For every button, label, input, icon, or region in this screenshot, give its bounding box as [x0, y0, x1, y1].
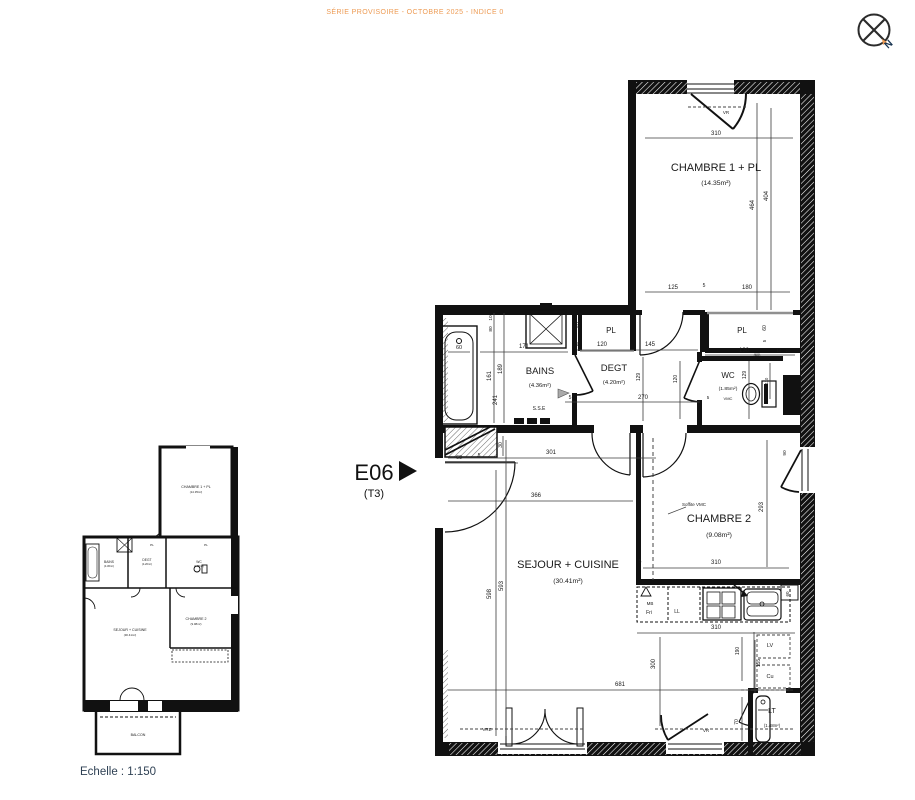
overview-plan: CHAMBRE 1 + PL(14.35m²)BAINS(4.36m²)DEGT… — [84, 446, 238, 754]
dimension-label: 5 — [703, 283, 706, 289]
overview-room-label: (30.41m²) — [124, 633, 137, 637]
annotation-label: LV — [767, 643, 774, 649]
room-name-label: CHAMBRE 1 + PL — [671, 162, 761, 174]
room-area-label: (1.85m²) — [719, 386, 738, 392]
dimension-label: 120 — [673, 375, 679, 384]
dimension-label: 120 — [597, 342, 608, 348]
dashed-lines — [460, 107, 795, 729]
fridge-warning-icon — [641, 587, 651, 596]
dimension-label: 310 — [711, 131, 722, 137]
overview-walls — [84, 446, 238, 754]
dimension-label: 60 — [576, 322, 582, 328]
dimension-label: 404 — [764, 190, 770, 201]
dimension-label: 310 — [711, 560, 722, 566]
dimension-label: 241 — [493, 394, 499, 405]
shower — [526, 310, 566, 348]
overview-room-label: PL — [204, 543, 208, 547]
dimension-label: 5 — [707, 395, 710, 400]
annotation-label: VRE — [482, 727, 491, 732]
overview-room-label: (4.36m²) — [104, 564, 114, 568]
dimension-label: 70 — [734, 719, 740, 725]
dimension-label: 180 — [742, 285, 753, 291]
dimension-label: 300 — [651, 658, 657, 669]
dimension-label: 366 — [531, 493, 542, 499]
annotation-label: MB — [647, 601, 654, 606]
dimension-label: 60 — [456, 345, 462, 351]
room-name-label: DEGT — [601, 363, 628, 374]
dimension-label: 189 — [498, 363, 504, 374]
dimension-label: 80 — [488, 326, 494, 332]
dimension-label: 190 — [735, 647, 741, 656]
dimension-label: 30 — [498, 442, 504, 448]
annotation-label: VR — [703, 728, 710, 733]
dimension-label: VR — [723, 110, 730, 115]
dimension-label: 90 — [782, 450, 788, 456]
dimension-label: 60 — [785, 591, 790, 597]
room-name-label: CHAMBRE 2 — [687, 513, 751, 525]
overview-room-label: CHAMBRE 2 — [186, 617, 207, 621]
windows — [435, 80, 815, 754]
towel-radiator — [514, 418, 550, 424]
floorplan-drawing: SÉRIE PROVISOIRE - OCTOBRE 2025 - INDICE… — [0, 0, 915, 800]
room-name-label: PL — [737, 326, 747, 335]
dimension-label: 310 — [711, 625, 722, 631]
overview-room-label: WC — [196, 560, 202, 564]
fixtures — [441, 310, 790, 742]
room-area-label: (4.20m²) — [603, 380, 625, 386]
overview-room-label: (1.85m²) — [194, 564, 204, 568]
unit-pointer-icon — [399, 461, 417, 481]
dimension-label: 155 — [756, 659, 762, 668]
dimension-label: 598 — [487, 588, 493, 599]
kitchen-counter — [637, 584, 790, 622]
technical-duct — [445, 427, 497, 457]
dimension-label: (60) — [754, 353, 761, 357]
dimension-label: 129 — [636, 373, 642, 382]
dimension-label: 5 — [478, 453, 481, 459]
annotation-label: LL — [674, 609, 680, 615]
annotation-label: VMC — [724, 396, 733, 401]
unit-type: (T3) — [364, 488, 384, 500]
dimension-label: 293 — [759, 501, 765, 512]
dimension-label: 301 — [546, 450, 557, 456]
dimension-label: 5 — [569, 395, 572, 401]
annotation-label: Soffite VMC — [682, 502, 707, 507]
room-name-label: BAINS — [526, 366, 555, 377]
dimension-label: 129 — [742, 371, 748, 380]
main-plan: 3101255180464404VR606051715120145130(60)… — [435, 80, 815, 756]
dimension-label: 10 — [488, 315, 494, 321]
dimension-label: 10 — [777, 348, 782, 353]
room-name-label: SEJOUR + CUISINE — [517, 559, 619, 571]
dimension-label: 5 — [762, 339, 767, 342]
overview-room-label: DEGT — [142, 558, 151, 562]
overview-room-label: (9.08m²) — [191, 622, 202, 626]
overview-room-label: BAINS — [104, 560, 115, 564]
series-title: SÉRIE PROVISOIRE - OCTOBRE 2025 - INDICE… — [326, 7, 503, 16]
doors — [445, 94, 801, 746]
dimension-label: 681 — [615, 682, 626, 688]
north-compass-icon: N — [859, 15, 896, 52]
overview-room-label: (4.20m²) — [142, 562, 152, 566]
water-heater — [756, 696, 770, 742]
dimension-label: 5 — [576, 342, 579, 348]
dimension-label: 161 — [487, 370, 493, 381]
dimension-label: 270 — [638, 395, 649, 401]
room-name-label: PL — [606, 326, 616, 335]
dimension-label: 130 — [739, 348, 750, 354]
overview-fixtures — [84, 528, 207, 700]
annotation-label: Cu — [766, 674, 773, 680]
dimension-label: 593 — [499, 580, 505, 591]
room-area-label: (4.36m²) — [529, 383, 551, 389]
room-area-label: (1.48m²) — [764, 723, 781, 728]
overview-room-label: SEJOUR + CUISINE — [113, 628, 147, 632]
dimension-label: 171 — [519, 344, 530, 350]
annotation-label: S.S.E — [533, 406, 546, 412]
overview-room-label: CHAMBRE 1 + PL — [181, 485, 210, 489]
scale-label: Echelle : 1:150 — [80, 766, 156, 778]
unit-label: E06 (T3) — [354, 460, 417, 500]
dimension-label: 145 — [645, 342, 656, 348]
floorplan-page: { "header": { "title": "SÉRIE PROVISOIRE… — [0, 0, 915, 800]
dimension-label: 60 — [762, 325, 768, 331]
annotation-label: Fri — [646, 610, 652, 616]
dimension-label: 20 — [786, 348, 791, 353]
exterior-walls — [435, 80, 815, 756]
dimension-label: 60 — [456, 455, 462, 461]
dimension-label: 110 — [764, 377, 769, 384]
room-area-label: (9.08m²) — [706, 532, 732, 539]
sink — [744, 589, 781, 620]
unit-code: E06 — [354, 460, 393, 485]
overview-room-label: PL — [150, 543, 154, 547]
overview-room-label: (14.35m²) — [190, 490, 203, 494]
compass-north-label: N — [883, 38, 896, 51]
room-name-label: WC — [721, 371, 735, 380]
overview-room-label: BALCON — [131, 733, 146, 737]
dimension-label: 125 — [668, 285, 679, 291]
dimension-label: 464 — [750, 199, 756, 210]
room-area-label: (30.41m²) — [553, 578, 583, 585]
dimension-lines — [445, 103, 795, 741]
room-area-label: (14.35m²) — [701, 180, 731, 187]
dimension-label: 5 — [639, 559, 642, 565]
toilet — [743, 381, 777, 407]
room-name-label: LT — [768, 708, 776, 715]
